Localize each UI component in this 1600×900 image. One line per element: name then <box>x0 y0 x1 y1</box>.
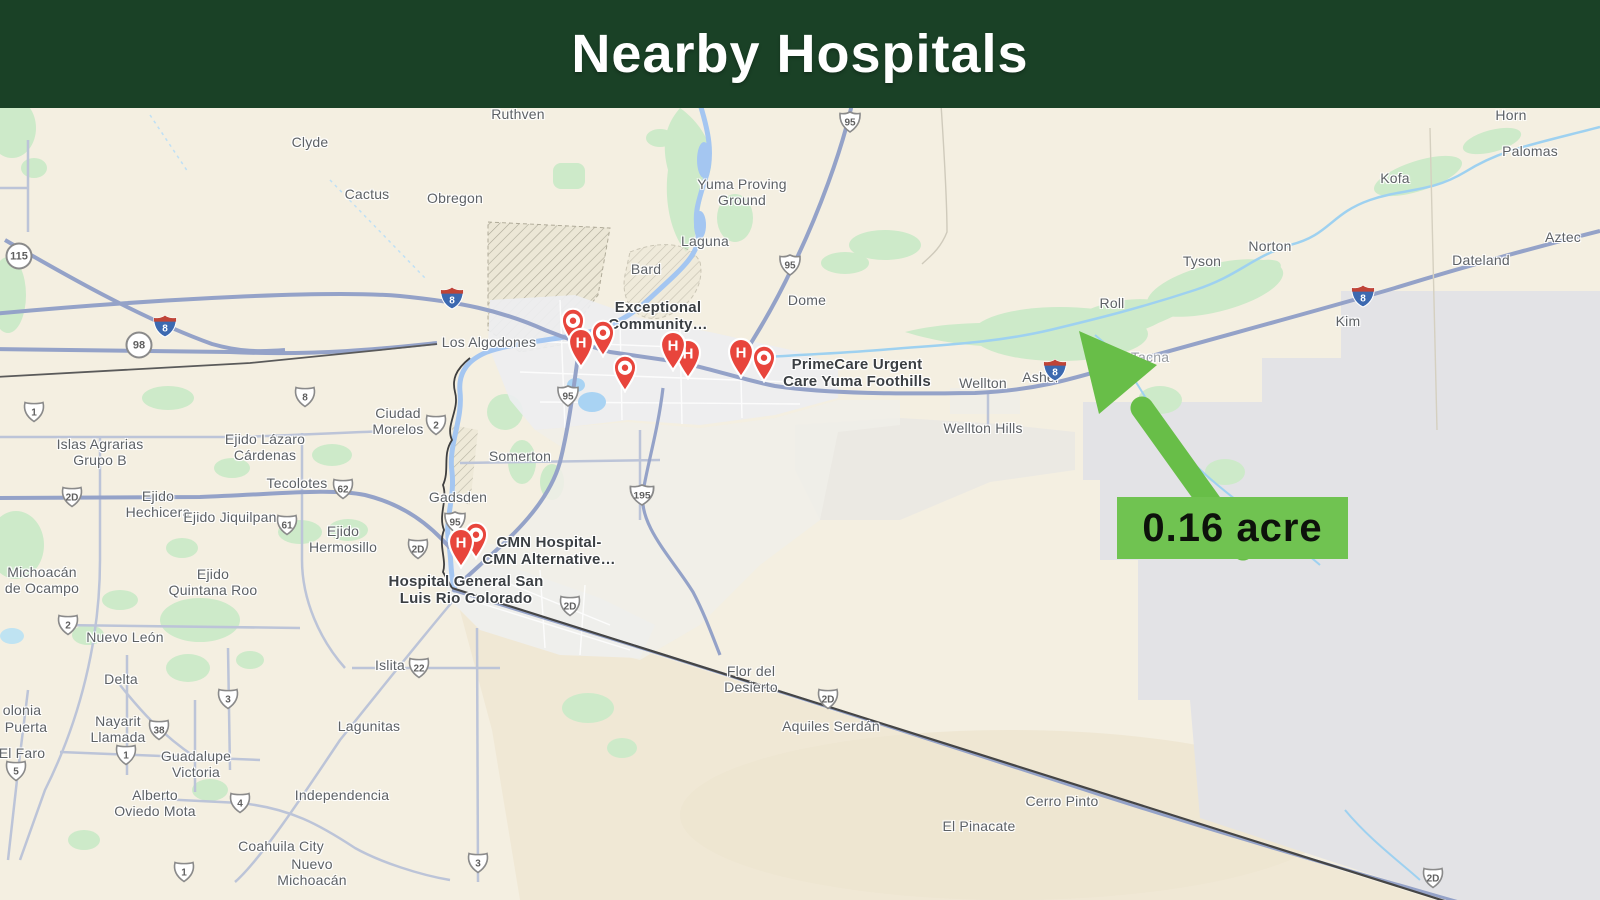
hospital-pin[interactable] <box>610 354 639 398</box>
page-title: Nearby Hospitals <box>571 23 1028 85</box>
hospital-pin[interactable]: H <box>445 527 477 574</box>
title-banner: Nearby Hospitals <box>0 0 1600 108</box>
area-annotation-label: 0.16 acre <box>1142 506 1322 551</box>
map-canvas[interactable]: RuthvenClydeCactusObregonYuma Proving Gr… <box>0 0 1600 900</box>
hospital-pin[interactable]: H <box>725 337 757 384</box>
hospital-pin[interactable]: H <box>565 327 597 374</box>
svg-text:H: H <box>736 344 747 361</box>
svg-text:H: H <box>668 337 679 354</box>
map-terrain <box>0 0 1600 900</box>
svg-text:H: H <box>576 334 587 351</box>
hospital-pin[interactable]: H <box>657 330 689 377</box>
svg-text:H: H <box>456 534 467 551</box>
area-annotation-box: 0.16 acre <box>1117 497 1348 559</box>
